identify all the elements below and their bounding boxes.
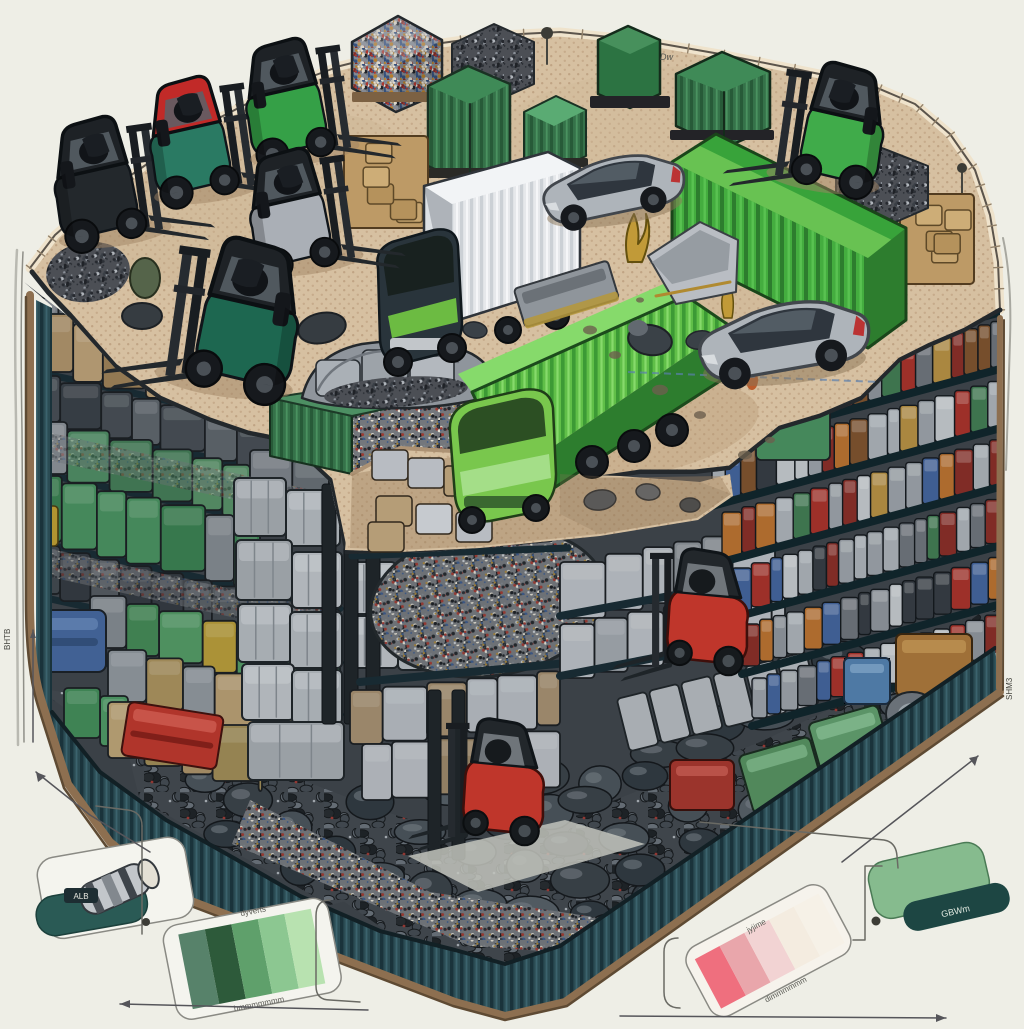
svg-text:ALB: ALB bbox=[73, 892, 88, 901]
svg-text:SHM3: SHM3 bbox=[1005, 677, 1014, 700]
svg-text:Dw: Dw bbox=[660, 52, 673, 62]
svg-text:BHTB: BHTB bbox=[3, 629, 12, 650]
